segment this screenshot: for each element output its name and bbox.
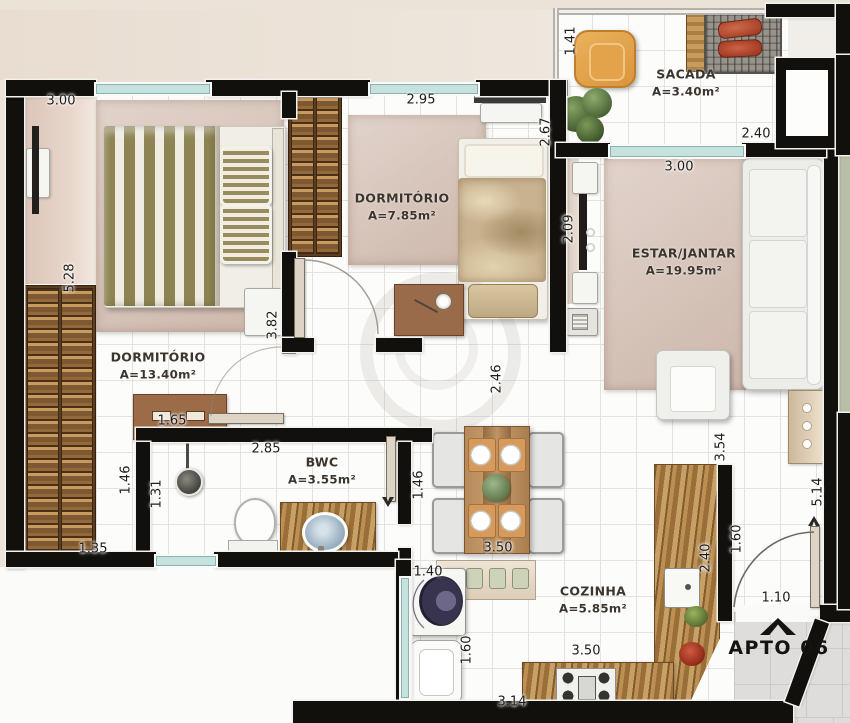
stove-center-burner bbox=[578, 676, 596, 700]
shaft-opening bbox=[786, 70, 828, 136]
window bbox=[156, 556, 216, 566]
bedroom2-side-desk bbox=[394, 284, 464, 336]
entry-door bbox=[810, 526, 820, 608]
room-label-dormitorio1: DORMITÓRIO A=13.40m² bbox=[111, 348, 206, 383]
console-table bbox=[788, 390, 824, 464]
dining-chair bbox=[528, 432, 564, 488]
room-name: BWC bbox=[306, 454, 339, 469]
wall bbox=[836, 55, 850, 155]
dining-chair bbox=[528, 498, 564, 554]
neighbor-floor bbox=[838, 150, 850, 413]
dimension-label: 2.09 bbox=[562, 215, 577, 244]
dimension-label: 2.40 bbox=[742, 127, 771, 142]
dresser-handle bbox=[186, 411, 205, 421]
wall bbox=[376, 338, 422, 352]
media-disc bbox=[586, 228, 595, 237]
dimension-label: 1.41 bbox=[564, 27, 579, 56]
wall bbox=[293, 701, 793, 723]
plant-foliage bbox=[582, 88, 612, 118]
bedroom2-pillow bbox=[464, 144, 544, 178]
balcony-glass-door bbox=[610, 146, 744, 157]
place-setting bbox=[468, 438, 496, 472]
wardrobe-shelves bbox=[27, 288, 59, 552]
bedroom2-duvet bbox=[458, 178, 546, 282]
dimension-label: 5.14 bbox=[811, 478, 826, 507]
wardrobe-shelves bbox=[316, 95, 339, 254]
bedroom1-pillow bbox=[220, 204, 272, 264]
dimension-label: 3.54 bbox=[714, 433, 729, 462]
wall bbox=[214, 552, 398, 567]
dining-chair bbox=[432, 498, 468, 554]
room-name: DORMITÓRIO bbox=[355, 190, 450, 205]
bathroom-sink bbox=[302, 512, 348, 553]
laundry-jar bbox=[512, 568, 529, 589]
dimension-label: 2.46 bbox=[490, 365, 505, 394]
room-label-sacada: SACADA A=3.40m² bbox=[652, 65, 720, 100]
window bbox=[96, 84, 210, 94]
wall bbox=[136, 442, 150, 554]
shower-head bbox=[175, 468, 203, 496]
desk-lamp bbox=[435, 293, 452, 310]
table-centerpiece bbox=[482, 474, 510, 502]
laundry-tank bbox=[410, 640, 462, 704]
sofa-cushion bbox=[749, 311, 807, 379]
grill-meat bbox=[717, 17, 763, 39]
sofa bbox=[742, 158, 824, 390]
dimension-label: 3.00 bbox=[665, 160, 694, 175]
dimension-label: 3.82 bbox=[266, 311, 281, 340]
tv-rack-speaker bbox=[572, 162, 598, 194]
room-area: A=3.55m² bbox=[288, 472, 356, 489]
media-disc bbox=[586, 243, 595, 252]
counter-vegetables bbox=[684, 606, 708, 627]
wardrobe-shelves bbox=[61, 288, 93, 552]
balcony-chair-seat bbox=[589, 43, 625, 81]
bedroom1-blanket bbox=[104, 126, 220, 306]
dimension-label: 1.40 bbox=[414, 565, 443, 580]
sofa-cushion bbox=[749, 169, 807, 237]
bedroom2-desk bbox=[480, 103, 542, 123]
console-decor bbox=[802, 403, 812, 413]
dimension-label: 3.00 bbox=[47, 94, 76, 109]
bedroom2-foot-bench bbox=[468, 284, 538, 318]
wall bbox=[556, 143, 610, 157]
place-setting bbox=[468, 504, 496, 538]
balcony-chair bbox=[574, 30, 636, 88]
dimension-label: 1.35 bbox=[79, 542, 108, 557]
sink-drain bbox=[685, 584, 691, 590]
utility-shaft bbox=[776, 58, 838, 148]
armchair bbox=[656, 350, 730, 420]
dining-chair bbox=[432, 432, 468, 488]
room-label-bwc: BWC A=3.55m² bbox=[288, 453, 356, 488]
laundry-jar bbox=[466, 568, 483, 589]
room-label-cozinha: COZINHA A=5.85m² bbox=[559, 582, 627, 617]
dimension-label: 2.40 bbox=[699, 544, 714, 573]
washer-drum bbox=[419, 576, 463, 626]
wall bbox=[282, 338, 314, 352]
place-setting bbox=[498, 504, 526, 538]
apartment-number-label: APTO 06 bbox=[728, 637, 829, 659]
room-area: A=19.95m² bbox=[632, 263, 736, 280]
tv-rack-speaker bbox=[572, 272, 598, 304]
dimension-label: 2.67 bbox=[539, 118, 554, 147]
toilet-bowl bbox=[234, 498, 276, 546]
bedroom1-wardrobe bbox=[24, 285, 96, 555]
wall bbox=[838, 413, 850, 609]
sofa-back bbox=[807, 165, 821, 385]
telephone bbox=[572, 314, 588, 330]
console-decor bbox=[802, 439, 812, 449]
grill-counter-wood bbox=[686, 12, 706, 72]
wall bbox=[282, 92, 296, 118]
dimension-label: 3.14 bbox=[498, 695, 527, 710]
bedroom1-tv bbox=[32, 126, 39, 214]
laundry-jar bbox=[489, 568, 506, 589]
wall bbox=[6, 80, 24, 568]
bedroom1-pillow bbox=[220, 146, 272, 206]
room-name: DORMITÓRIO bbox=[111, 349, 206, 364]
console-decor bbox=[802, 421, 812, 431]
room-name: COZINHA bbox=[560, 583, 626, 598]
room-label-estar-jantar: ESTAR/JANTAR A=19.95m² bbox=[632, 244, 736, 279]
room-area: A=7.85m² bbox=[355, 208, 450, 225]
dimension-label: 1.60 bbox=[460, 636, 475, 665]
room-label-dormitorio2: DORMITÓRIO A=7.85m² bbox=[355, 189, 450, 224]
plant-foliage bbox=[576, 116, 604, 144]
dimension-label: 1.65 bbox=[158, 414, 187, 429]
dimension-label: 1.31 bbox=[150, 480, 165, 509]
dimension-label: 2.85 bbox=[252, 442, 281, 457]
dimension-label: 5.28 bbox=[63, 264, 78, 293]
sofa-cushion bbox=[749, 240, 807, 308]
bedroom2-door bbox=[294, 258, 305, 338]
wardrobe-shelves bbox=[291, 95, 314, 254]
dimension-label: 3.50 bbox=[572, 644, 601, 659]
place-setting bbox=[498, 438, 526, 472]
telephone-table bbox=[566, 308, 598, 336]
dimension-label: 3.50 bbox=[484, 541, 513, 556]
wall bbox=[824, 145, 838, 607]
balcony-plant bbox=[558, 88, 620, 150]
outside-bottom-left bbox=[0, 567, 396, 723]
outside-top-left bbox=[0, 10, 556, 82]
bedroom2-wardrobe bbox=[288, 92, 342, 257]
window bbox=[401, 578, 409, 698]
wall bbox=[398, 442, 411, 524]
grill-meat bbox=[718, 39, 763, 58]
dimension-label: 1.10 bbox=[762, 591, 791, 606]
room-area: A=13.40m² bbox=[111, 367, 206, 384]
room-name: ESTAR/JANTAR bbox=[632, 245, 736, 260]
room-area: A=5.85m² bbox=[559, 601, 627, 618]
floor-plan: DORMITÓRIO A=13.40m² DORMITÓRIO A=7.85m²… bbox=[0, 0, 850, 723]
armchair-seat bbox=[670, 366, 716, 412]
room-name: SACADA bbox=[656, 66, 715, 81]
dimension-label: 2.95 bbox=[407, 93, 436, 108]
tank-basin bbox=[419, 649, 454, 696]
dimension-label: 1.60 bbox=[730, 525, 745, 554]
counter-fruit-bowl bbox=[679, 642, 705, 666]
kitchen-sink bbox=[664, 568, 700, 608]
balcony-railing-top bbox=[556, 8, 770, 15]
dimension-label: 1.46 bbox=[119, 466, 134, 495]
bathroom-door bbox=[386, 436, 396, 502]
bedroom1-door bbox=[208, 413, 284, 424]
room-area: A=3.40m² bbox=[652, 84, 720, 101]
dimension-label: 1.46 bbox=[412, 471, 427, 500]
